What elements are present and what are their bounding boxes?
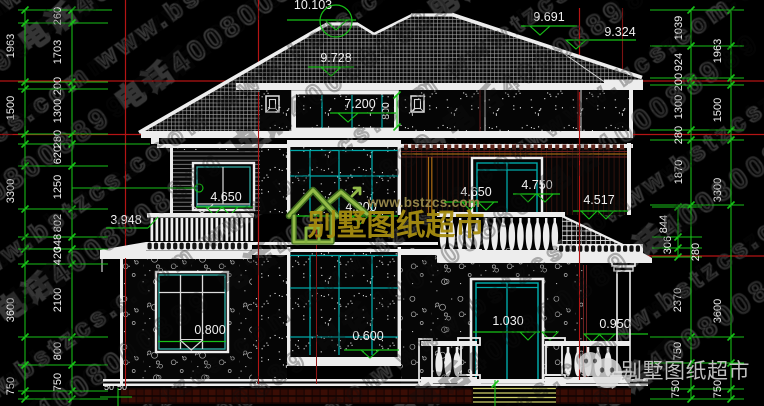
svg-text:别墅图纸超市: 别墅图纸超市 xyxy=(621,360,750,383)
svg-text:4.650: 4.650 xyxy=(210,190,241,204)
svg-text:1250: 1250 xyxy=(52,175,64,199)
svg-text:280: 280 xyxy=(673,126,685,144)
svg-text:280: 280 xyxy=(690,243,702,261)
svg-text:www.bstzcs.com: www.bstzcs.com xyxy=(367,195,480,210)
svg-text:1703: 1703 xyxy=(52,40,64,64)
svg-text:10.103: 10.103 xyxy=(294,0,332,12)
svg-text:0.800: 0.800 xyxy=(194,323,225,337)
svg-text:别墅图纸超市: 别墅图纸超市 xyxy=(307,208,484,242)
